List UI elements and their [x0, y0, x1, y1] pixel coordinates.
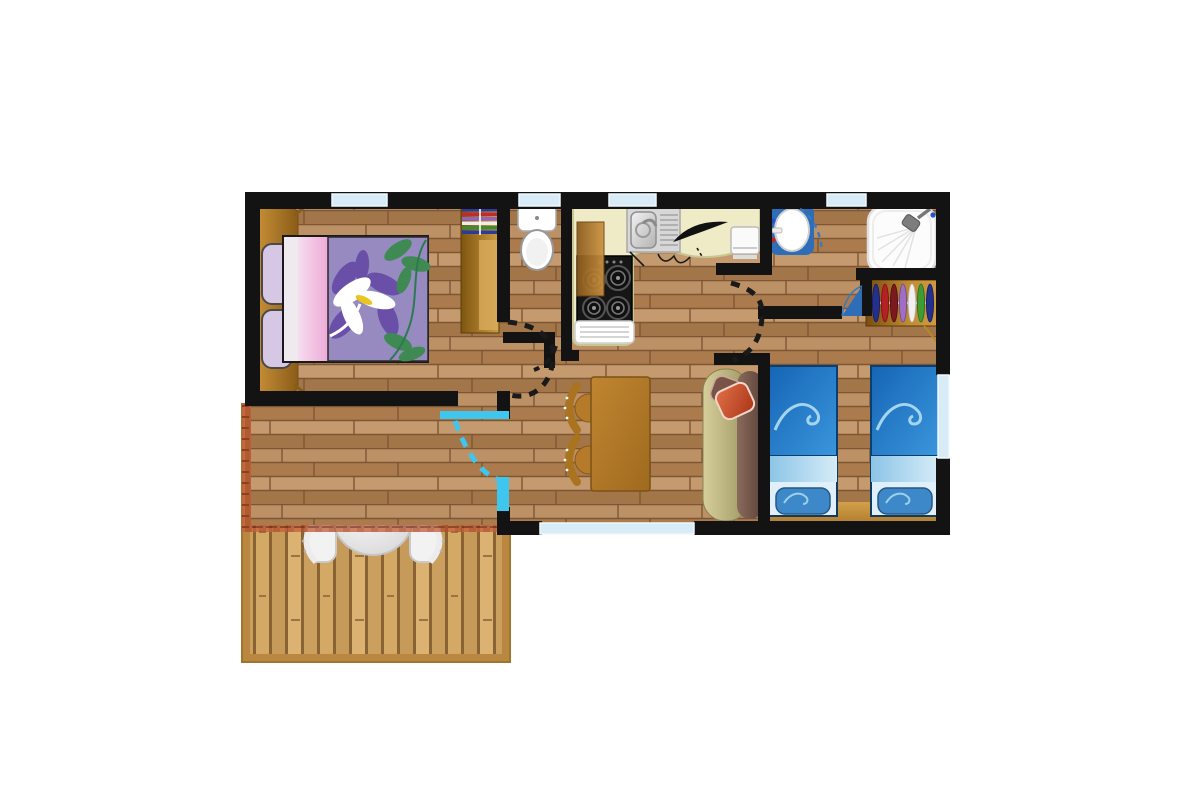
- tall-cabinet: [577, 222, 604, 296]
- single-bed: [769, 366, 837, 516]
- cold-tap-dot: [930, 212, 935, 217]
- wall-left: [245, 192, 260, 406]
- wall-wc-foot: [561, 350, 579, 361]
- wall-kitchen-bottom: [716, 263, 772, 275]
- wall-wc-right: [561, 207, 572, 357]
- blue-duvet: [871, 366, 939, 456]
- single-bed: [871, 366, 939, 516]
- wall-twin-top: [758, 306, 842, 319]
- dining-table: [591, 377, 650, 491]
- window-top-3: [609, 194, 656, 206]
- sheet-band: [769, 456, 837, 482]
- bed-sheet-band: [298, 237, 328, 361]
- window-right: [938, 375, 949, 458]
- counter-appliance: [731, 227, 759, 259]
- bedroom-wardrobe: [461, 206, 499, 333]
- sofa: [703, 369, 763, 521]
- shower-tray: [868, 200, 936, 274]
- wall-right: [936, 192, 950, 375]
- floor-plan-page: [0, 0, 1200, 800]
- washbasin: [770, 205, 814, 255]
- double-bed: [283, 235, 432, 364]
- wall-bottom: [694, 521, 950, 535]
- window-bottom: [540, 523, 694, 534]
- wall-twin-left: [758, 353, 770, 535]
- window-top-4: [827, 194, 866, 206]
- toilet: [518, 205, 556, 270]
- wall-bedroom-right: [497, 207, 510, 322]
- fridge: [575, 321, 634, 343]
- window-top-1: [332, 194, 387, 206]
- wall-bottom: [497, 521, 542, 535]
- window-top-2: [519, 194, 560, 206]
- sheet-band: [871, 456, 939, 482]
- entrance-door-leaf: [440, 411, 509, 419]
- wall-right: [936, 458, 950, 535]
- wall-bedroom-bottom: [245, 391, 458, 406]
- building: [245, 192, 950, 535]
- entrance-door-jamb: [497, 477, 509, 511]
- floor-plan-canvas: [0, 0, 1200, 800]
- blue-duvet: [769, 366, 837, 456]
